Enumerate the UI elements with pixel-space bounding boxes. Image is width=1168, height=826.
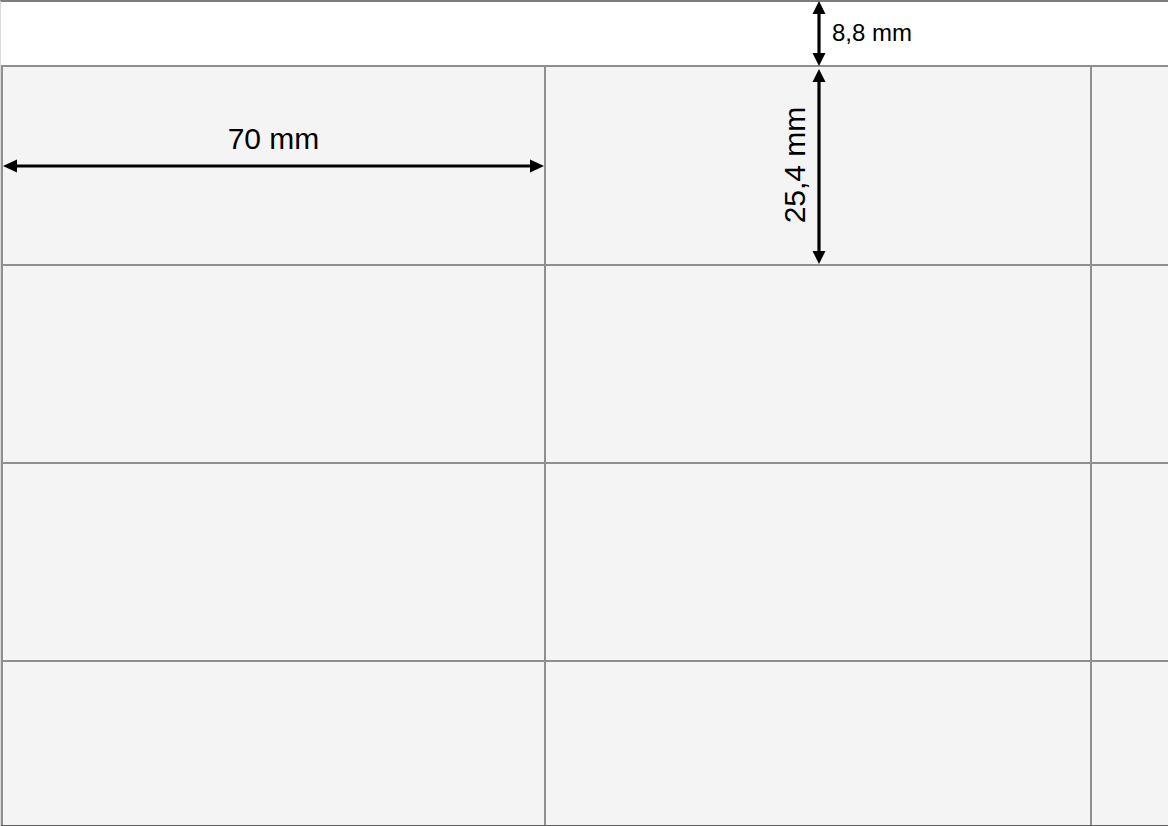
label-cell bbox=[1092, 266, 1168, 464]
label-height-dimension-label: 25,4 mm bbox=[778, 107, 813, 224]
label-cell bbox=[3, 662, 546, 826]
sheet-top-margin-area bbox=[1, 2, 1168, 65]
label-cell bbox=[1092, 662, 1168, 826]
label-cell bbox=[546, 67, 1092, 266]
top-margin-dimension-label: 8,8 mm bbox=[832, 19, 912, 47]
label-grid bbox=[1, 65, 1168, 826]
label-cell bbox=[1092, 67, 1168, 266]
label-cell bbox=[3, 464, 546, 662]
label-cell bbox=[546, 266, 1092, 464]
label-cell bbox=[1092, 464, 1168, 662]
label-cell bbox=[3, 266, 546, 464]
label-cell bbox=[546, 662, 1092, 826]
label-cell bbox=[546, 464, 1092, 662]
label-sheet-preview: 8,8 mm 70 mm 25,4 mm bbox=[0, 0, 1168, 826]
label-cell bbox=[3, 67, 546, 266]
label-width-dimension-label: 70 mm bbox=[1, 122, 546, 157]
